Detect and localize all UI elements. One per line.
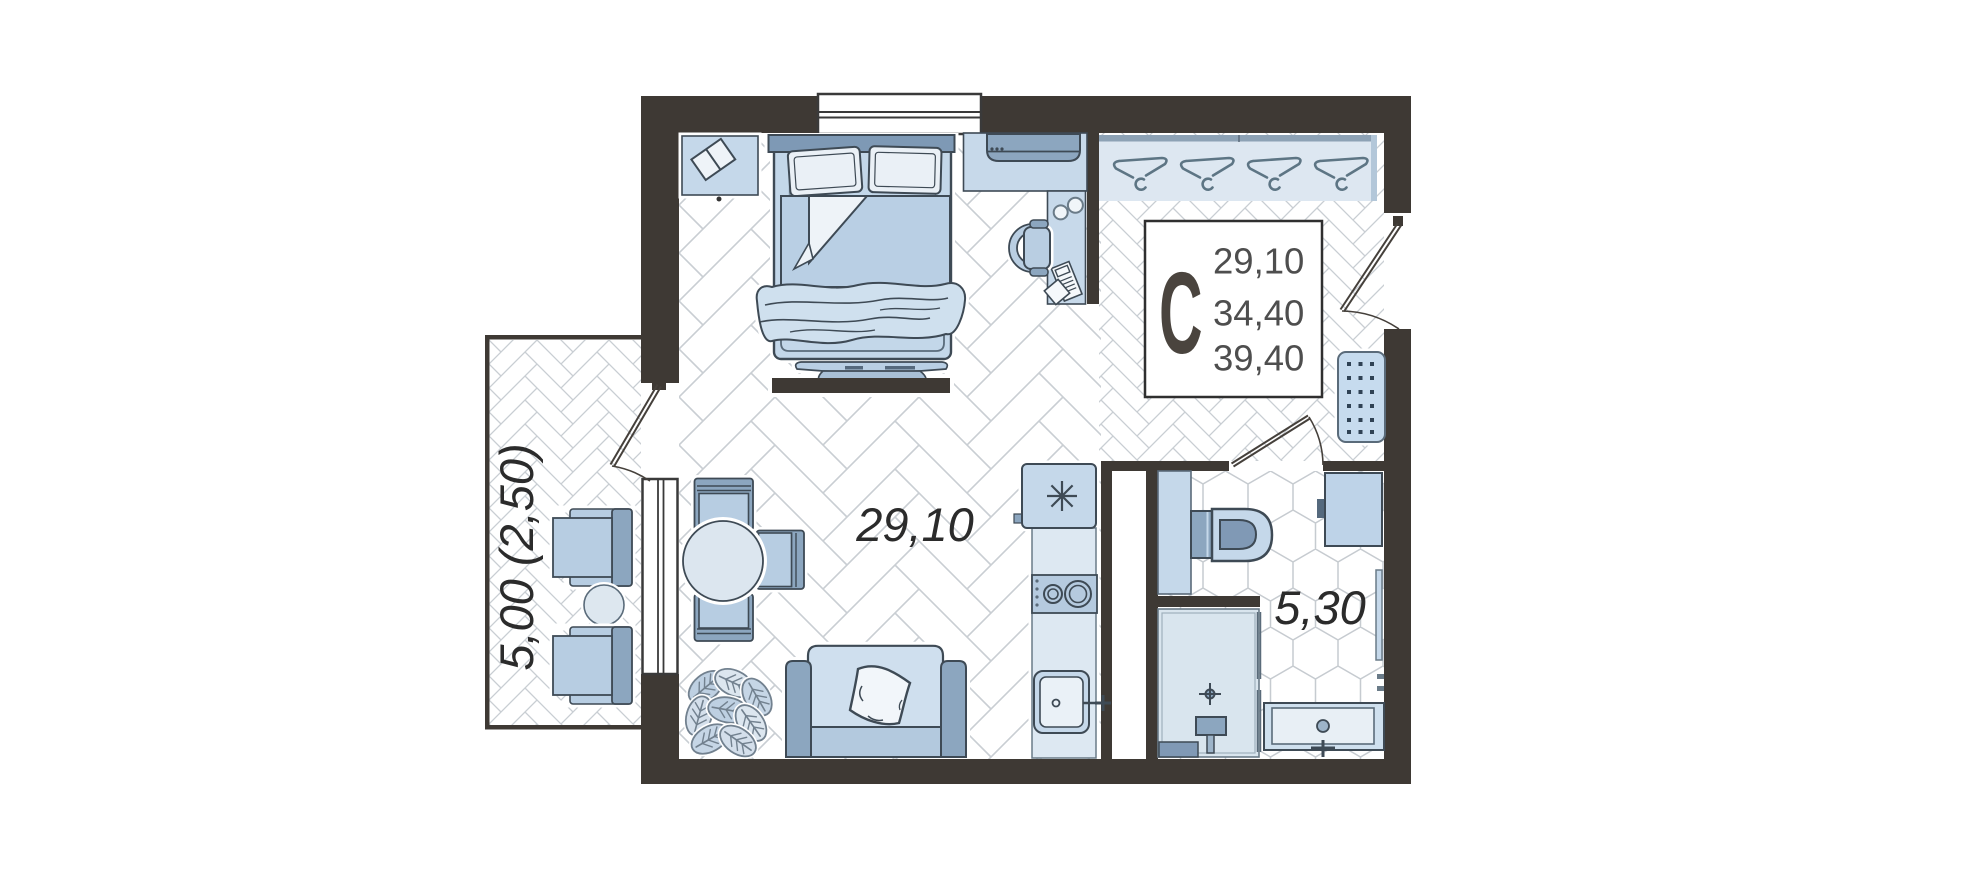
svg-text:С: С	[1159, 248, 1203, 378]
svg-text:34,40: 34,40	[1213, 293, 1304, 334]
svg-text:5,30: 5,30	[1274, 581, 1365, 634]
svg-text:29,10: 29,10	[855, 498, 974, 551]
svg-text:39,40: 39,40	[1213, 338, 1304, 379]
svg-text:29,10: 29,10	[1213, 241, 1304, 282]
svg-text:5,00 (2,50): 5,00 (2,50)	[490, 443, 543, 670]
